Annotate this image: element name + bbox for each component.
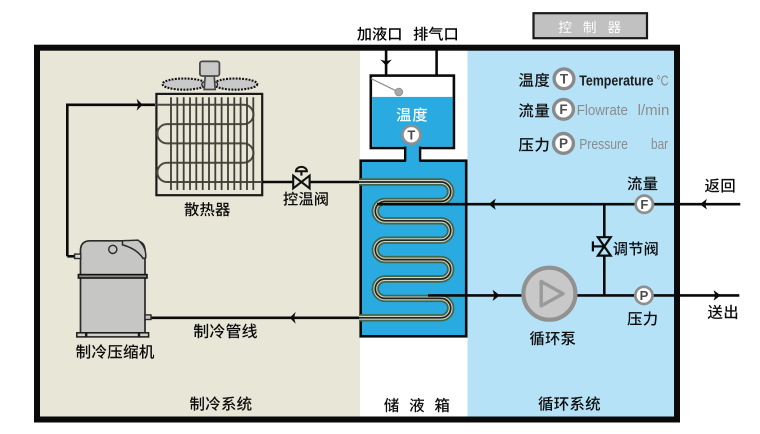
svg-text:Temperature: Temperature	[579, 73, 653, 89]
svg-text:Flowrate: Flowrate	[577, 103, 628, 119]
svg-text:P: P	[640, 288, 649, 303]
svg-text:P: P	[559, 136, 568, 151]
svg-text:F: F	[640, 197, 648, 212]
svg-text:°C: °C	[656, 73, 668, 89]
svg-text:T: T	[407, 127, 415, 142]
svg-text:F: F	[559, 102, 567, 117]
svg-text:l/min: l/min	[638, 103, 670, 119]
svg-text:Pressure: Pressure	[579, 137, 628, 153]
svg-text:bar: bar	[651, 137, 668, 153]
svg-text:T: T	[560, 72, 569, 87]
